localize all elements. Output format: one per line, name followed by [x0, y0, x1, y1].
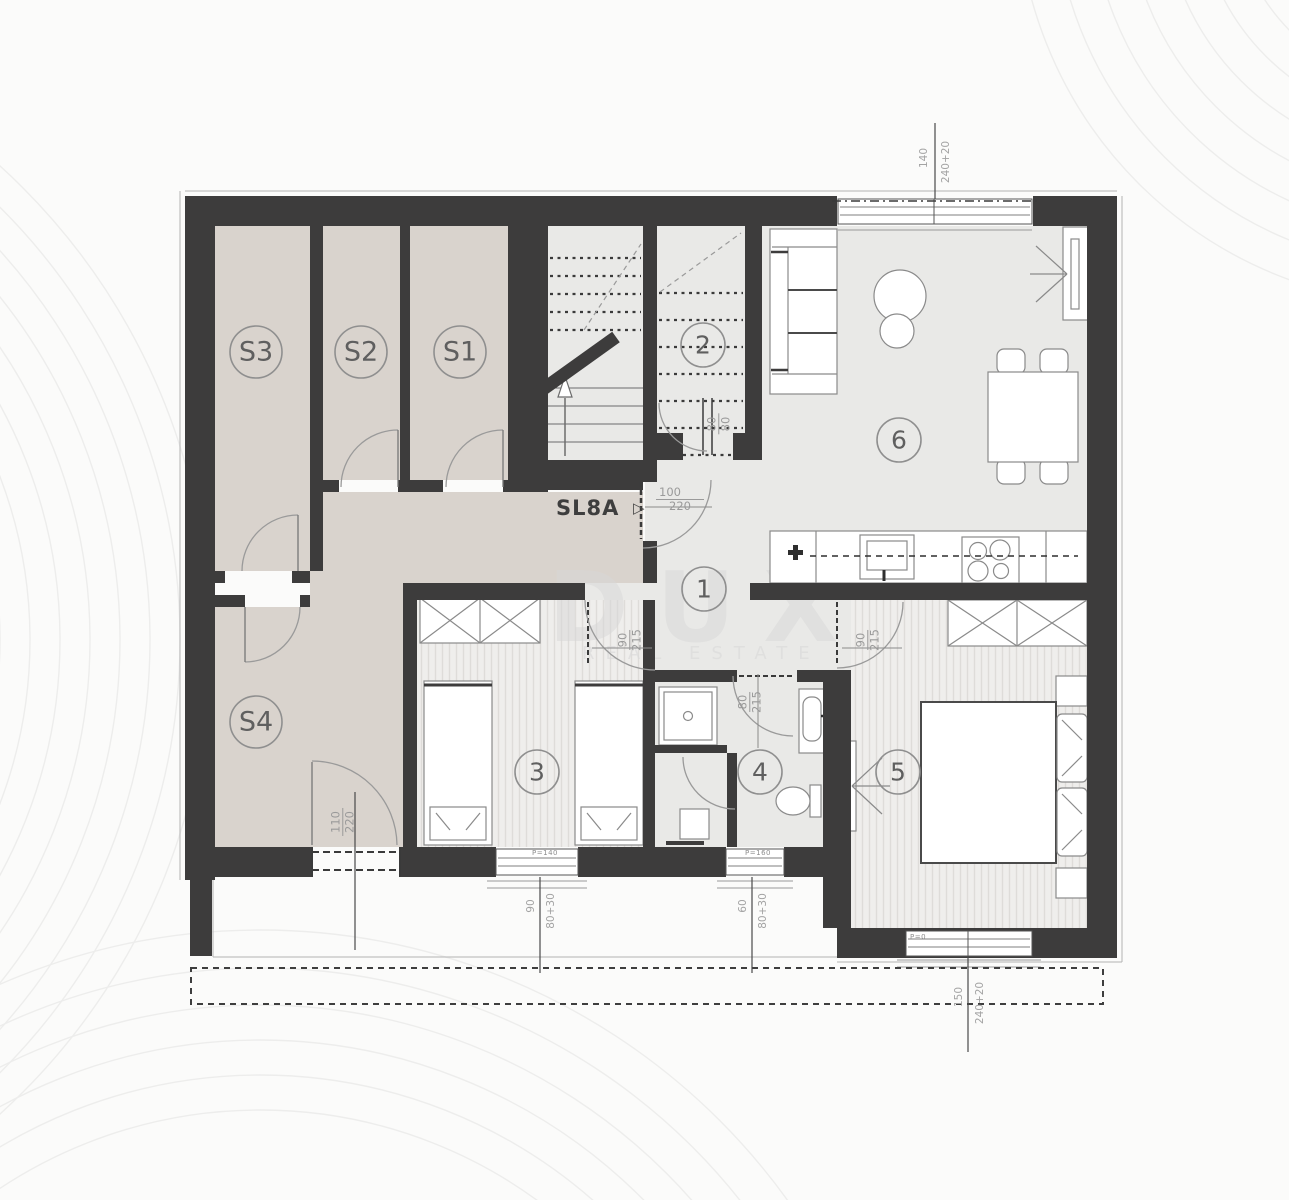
dim-living-window-b: 240+20 — [940, 141, 952, 183]
window-parapet-label-bedroom3: P=140 — [532, 849, 558, 857]
room-label-5: 5 — [890, 758, 906, 787]
dim-bedroom5-window-b: 240+20 — [974, 982, 986, 1024]
dim-bedroom3-door: 90 215 — [616, 626, 643, 654]
room-label-s3: S3 — [239, 337, 273, 368]
room-label-s1: S1 — [443, 337, 477, 368]
window-parapet-label-bedroom5: P=0 — [910, 933, 926, 941]
floorplan-drawing: DUX REAL ESTATE — [0, 0, 1289, 1200]
terrace-outline — [191, 968, 1103, 1004]
unit-code-label: SL8A — [556, 496, 619, 520]
room-label-4: 4 — [752, 758, 768, 787]
dim-entrance-door: 100 220 — [656, 486, 704, 513]
room-label-s4: S4 — [239, 707, 273, 738]
window-parapet-label-bathroom: P=160 — [745, 849, 771, 857]
door-direction-icon: ▷ — [633, 499, 645, 517]
room-label-s2: S2 — [344, 337, 378, 368]
floorplan-page: DUX REAL ESTATE — [0, 0, 1289, 1200]
room-label-2: 2 — [695, 331, 711, 360]
dim-bathroom-window-b: 80+30 — [757, 893, 769, 929]
dim-bedroom3-window-a: 90 — [525, 899, 537, 912]
dim-bedroom3-window-b: 80+30 — [545, 893, 557, 929]
dim-bedroom5-window-a: 150 — [953, 987, 965, 1007]
dim-stair-door: 80 80 — [705, 414, 732, 435]
dim-bathroom-window-a: 60 — [737, 899, 749, 912]
room-label-3: 3 — [529, 758, 545, 787]
dim-bedroom5-door: 90 215 — [854, 626, 881, 654]
dim-corridor-exit-door: 110 220 — [329, 808, 356, 836]
room-label-1: 1 — [696, 575, 712, 604]
dim-living-window-a: 140 — [918, 148, 930, 168]
room-label-6: 6 — [891, 426, 907, 455]
dim-bathroom-door: 80 215 — [736, 688, 763, 716]
